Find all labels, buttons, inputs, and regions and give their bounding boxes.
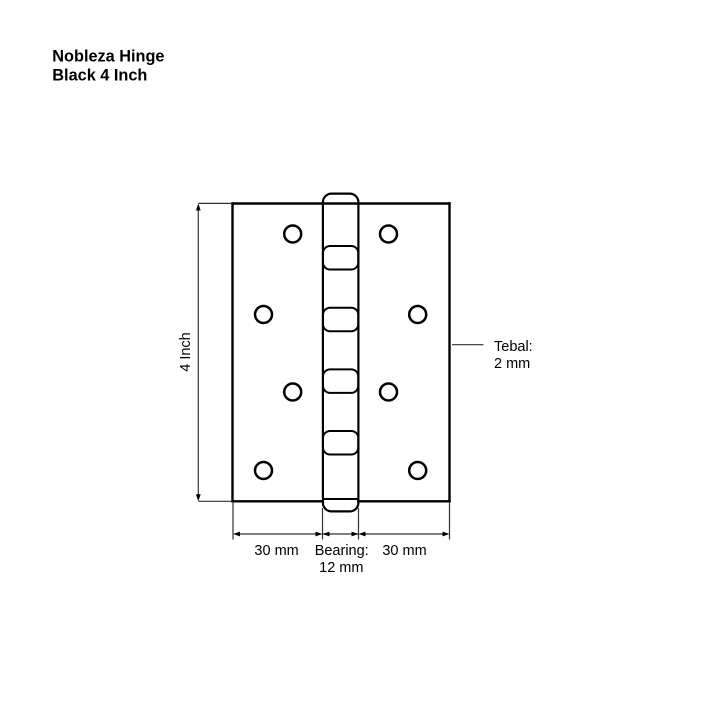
svg-text:2 mm: 2 mm <box>494 356 530 372</box>
svg-text:12 mm: 12 mm <box>319 560 363 576</box>
svg-text:30 mm: 30 mm <box>254 543 298 559</box>
svg-text:Bearing:: Bearing: <box>315 543 369 559</box>
svg-text:Tebal:: Tebal: <box>494 339 533 355</box>
svg-text:Nobleza Hinge: Nobleza Hinge <box>52 48 164 66</box>
svg-text:Black 4 Inch: Black 4 Inch <box>52 67 147 85</box>
svg-text:30 mm: 30 mm <box>382 543 426 559</box>
svg-text:4 Inch: 4 Inch <box>178 332 194 372</box>
